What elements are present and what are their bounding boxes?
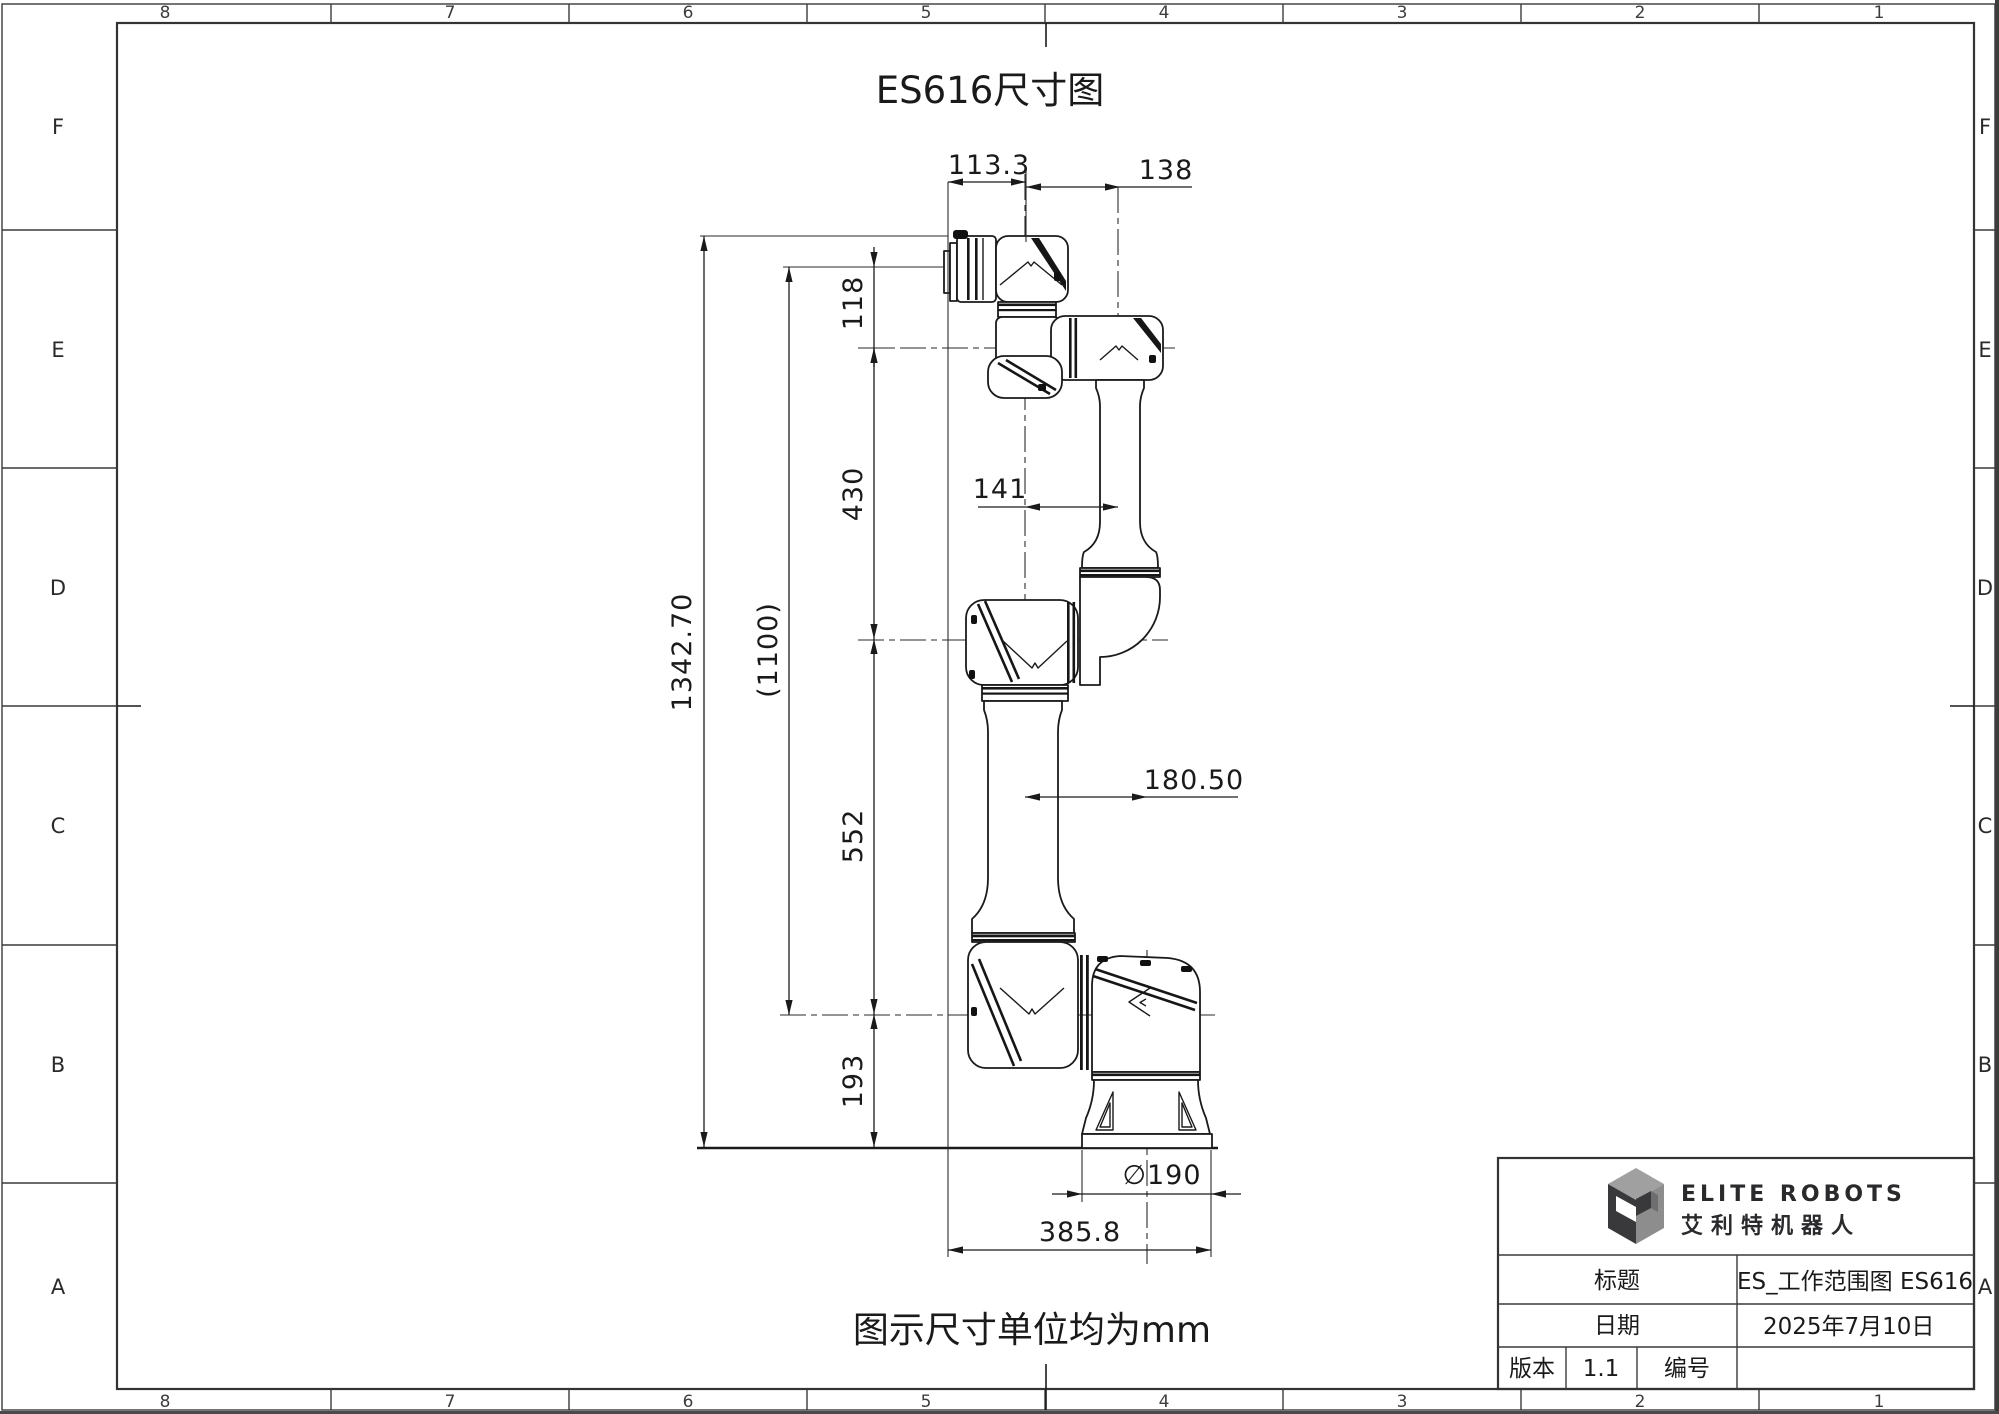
elite-robots-logo: ELITE ROBOTS 艾利特机器人 [1608,1168,1906,1244]
zone-col-label: 2 [1635,3,1646,23]
zone-col-label: 2 [1635,1392,1646,1412]
base-joint [1092,956,1200,1080]
dim-label: 552 [838,809,869,864]
zone-col-label: 1 [1874,3,1885,23]
title-label: 标题 [1594,1268,1640,1294]
zone-row-label: C [51,814,66,838]
dim-1100: (1100) [753,267,789,1015]
zone-row-label: A [51,1275,66,1299]
zone-row-label: D [1977,576,1993,600]
wrist-neck [998,302,1056,317]
version-value: 1.1 [1583,1356,1620,1382]
title-block: ELITE ROBOTS 艾利特机器人 标题 ES_工作范围图 ES616 日期… [1498,1158,1974,1389]
dim-label: 180.50 [1144,765,1244,796]
zone-col-label: 1 [1874,1392,1885,1412]
zone-col-label: 7 [445,1392,456,1412]
number-label: 编号 [1664,1356,1710,1382]
shoulder-seam [972,933,1075,942]
zone-row-label: F [52,115,64,139]
forearm-tube [1082,380,1158,568]
dim-138: 138 [1026,155,1193,187]
dim-430: 430 [838,348,874,639]
drawing-title: ES616尺寸图 [876,69,1105,112]
elbow-seam [1080,568,1160,577]
zone-letters-left: F E D C B A [50,115,66,1299]
zone-letters-right: F E D C B A [1977,115,1993,1299]
flange-cap [953,230,968,239]
elbow-joint [1080,577,1160,685]
unit-note: 图示尺寸单位均为mm [853,1310,1211,1351]
window-right-edge [1995,0,1999,1414]
elbow-link-joint [966,600,1078,685]
zone-row-label: F [1979,115,1991,139]
zone-col-label: 4 [1159,1392,1170,1412]
zone-row-label: C [1978,814,1993,838]
wrist3-joint [996,236,1068,302]
dim-label: 385.8 [1039,1217,1121,1248]
zone-numbers-bottom: 8 7 6 5 4 3 2 1 [160,1392,1885,1412]
dim-label: 113.3 [948,150,1030,181]
dim-141: 141 [973,474,1118,507]
zone-col-label: 5 [921,3,932,23]
dim-118: 118 [838,247,874,367]
zone-col-label: 5 [921,1392,932,1412]
base-pedestal [1082,1080,1212,1148]
dim-label: (1100) [753,602,784,698]
zone-row-label: B [51,1053,65,1077]
zone-col-label: 8 [160,3,171,23]
dim-dia-190: ∅190 [1052,1160,1241,1194]
tool-flange [944,230,996,302]
zone-row-label: E [51,338,64,362]
zone-col-label: 7 [445,3,456,23]
dim-label: ∅190 [1122,1160,1201,1191]
dim-1342-70: 1342.70 [667,236,704,1147]
zone-col-label: 6 [683,1392,694,1412]
dim-label: 141 [973,474,1028,505]
zone-col-label: 4 [1159,3,1170,23]
dim-label: 1342.70 [667,593,698,712]
brand-name-cn: 艾利特机器人 [1681,1213,1861,1239]
dim-385-8: 385.8 [948,1217,1211,1250]
zone-numbers-top: 8 7 6 5 4 3 2 1 [160,3,1885,23]
dim-label: 138 [1139,155,1194,186]
dim-label: 118 [838,276,869,331]
dim-label: 193 [838,1054,869,1109]
zone-row-label: B [1978,1053,1992,1077]
upperarm-neck [982,685,1068,701]
cube-logo-icon [1608,1168,1664,1244]
zone-col-label: 6 [683,3,694,23]
date-value: 2025年7月10日 [1763,1314,1934,1340]
zone-row-label: D [50,576,66,600]
dim-113-3: 113.3 [948,150,1030,182]
zone-col-label: 8 [160,1392,171,1412]
dim-193: 193 [838,1014,874,1147]
drawing-sheet: 8 7 6 5 4 3 2 1 8 7 6 5 4 3 2 1 F E D C … [0,0,1999,1414]
version-label: 版本 [1509,1356,1555,1382]
zone-col-label: 3 [1397,3,1408,23]
date-label: 日期 [1594,1313,1640,1339]
dim-552: 552 [838,639,874,1014]
zone-col-label: 3 [1397,1392,1408,1412]
dim-label: 430 [838,467,869,522]
zone-row-label: A [1978,1275,1993,1299]
cad-drawing-canvas: 8 7 6 5 4 3 2 1 8 7 6 5 4 3 2 1 F E D C … [0,0,1999,1414]
zone-row-label: E [1978,338,1991,362]
upperarm-tube [972,701,1074,933]
shoulder-joint [968,942,1089,1070]
title-value: ES_工作范围图 ES616 [1737,1269,1973,1295]
brand-name-en: ELITE ROBOTS [1681,1182,1906,1207]
